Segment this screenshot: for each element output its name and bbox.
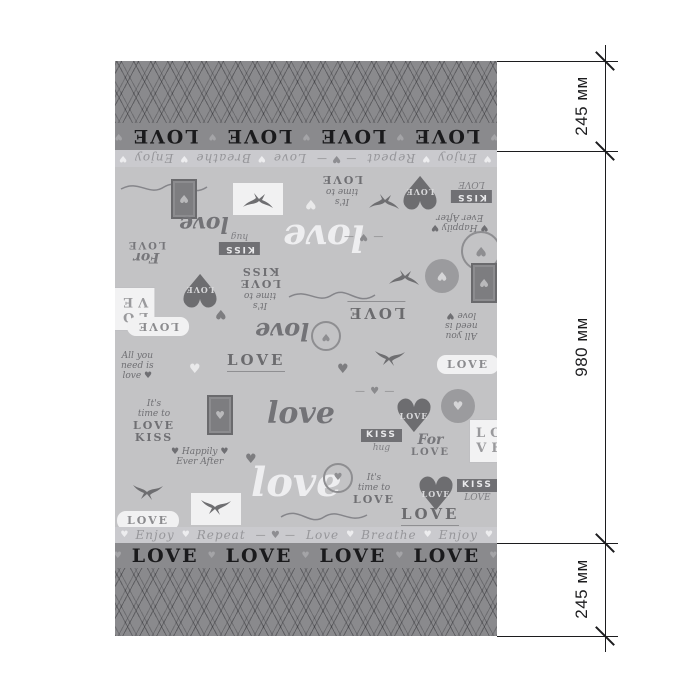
fabric-panel: LOVE♥LOVE♥LOVE♥LOVE♥LOVE♥LOVE Love♥Breat…	[115, 61, 497, 636]
strip-word: Breathe	[361, 528, 416, 542]
strip-word: Repeat	[366, 152, 415, 166]
heart-icon: ♥	[182, 530, 190, 540]
top-lattice-pattern	[115, 61, 497, 123]
heart-icon: ♥	[422, 154, 430, 164]
product-dimension-diagram: LOVE♥LOVE♥LOVE♥LOVE♥LOVE♥LOVE Love♥Breat…	[0, 0, 700, 700]
heart-icon: ♥	[453, 400, 464, 412]
motif-flourish	[279, 509, 369, 527]
motif-stack: It'stime toLOVEKISS	[133, 399, 175, 444]
heart-icon: ♥	[437, 270, 448, 282]
motif-wreath: ♥	[311, 321, 341, 351]
motif-frame: LOVE	[469, 419, 497, 463]
motif-script: love	[267, 399, 335, 429]
flourish-ornament: ♥	[395, 551, 404, 561]
love-border-word: LOVE	[132, 545, 199, 567]
strip-word: Enjoy	[437, 152, 476, 166]
motif-kiss: KISSLOVE	[451, 179, 492, 203]
top-love-breathe-strip: Love♥Breathe♥Enjoy♥Repeat— ♥ —Love♥Breat…	[115, 150, 497, 167]
flourish-ornament: ♥	[301, 551, 310, 561]
swallow-icon	[373, 349, 407, 367]
motif-wreath: ♥	[323, 463, 353, 493]
heart-icon: ♥	[346, 530, 354, 540]
motif-arrowheart: — ♥ —	[343, 231, 383, 241]
motif-swallow	[387, 265, 421, 287]
flourish-ornament: ♥	[208, 132, 217, 142]
motif-stack: ♥ Happily ♥Ever After	[171, 447, 228, 468]
flourish-ornament: ♥	[489, 132, 497, 142]
flourish-ornament: ♥	[115, 132, 123, 142]
flourish-icon	[279, 509, 369, 525]
motif-forlove: ForLOVE	[127, 239, 166, 264]
strip-word: Enjoy	[135, 528, 174, 542]
arrow-heart-divider: — ♥ —	[316, 153, 356, 164]
dimension-label-middle: 980 мм	[532, 297, 632, 397]
love-border-word: LOVE	[226, 545, 293, 567]
swallow-icon	[199, 498, 233, 516]
motif-etch	[233, 183, 283, 215]
love-border-word: LOVE	[320, 126, 387, 148]
motif-banner: LOVE	[347, 301, 405, 320]
bottom-love-breathe-strip: Love♥Breathe♥Enjoy♥Repeat— ♥ —Love♥Breat…	[115, 527, 497, 543]
motif-script: love	[255, 319, 309, 343]
love-border-word: LOVE	[132, 126, 199, 148]
motif-stack: It'stime toLOVE	[353, 473, 395, 506]
flourish-ornament: ♥	[395, 132, 404, 142]
motif-forlove: ForLOVE	[411, 433, 450, 458]
heart-icon: ♥	[215, 307, 227, 320]
top-love-border: LOVE♥LOVE♥LOVE♥LOVE♥LOVE♥LOVE	[115, 123, 497, 150]
love-border-word: LOVE	[320, 545, 387, 567]
heart-icon: ♥	[485, 530, 493, 540]
motif-kiss: KISSLOVE	[457, 479, 497, 503]
strip-word: Repeat	[197, 528, 246, 542]
pattern-field: ♥It'stime toLOVE♥LOVEKISSLOVE♥love♥ Happ…	[115, 167, 497, 527]
heart-icon: ♥	[180, 154, 188, 164]
motif-swallow	[373, 349, 407, 371]
motif-stamp: ♥	[207, 395, 233, 435]
motif-flourish	[287, 283, 377, 303]
strip-word: Love	[273, 152, 306, 166]
arrow-heart-divider: — ♥ —	[256, 530, 296, 541]
heart-icon: ♥	[305, 197, 317, 210]
swallow-icon	[241, 192, 275, 210]
motif-banner: LOVE	[227, 353, 285, 372]
motif-swallow	[131, 483, 165, 505]
flourish-ornament: ♥	[115, 551, 123, 561]
swallow-icon	[367, 193, 401, 211]
strip-word: Enjoy	[134, 152, 173, 166]
motif-heart: ♥LOVE	[397, 171, 443, 215]
motif-etch	[191, 493, 241, 525]
heart-icon: ♥	[337, 363, 349, 376]
flourish-ornament: ♥	[489, 551, 497, 561]
heart-icon: ♥	[484, 154, 492, 164]
heart-icon: ♥	[189, 363, 201, 376]
flourish-ornament: ♥	[208, 551, 217, 561]
dimension-label-top: 245 мм	[532, 56, 632, 156]
motif-crest: ♥	[441, 389, 475, 423]
bottom-love-border: LOVE♥LOVE♥LOVE♥LOVE♥LOVE♥LOVE	[115, 543, 497, 568]
motif-crest: ♥	[425, 259, 459, 293]
motif-stack: It'stime toLOVEKISS	[239, 265, 281, 310]
swallow-icon	[387, 269, 421, 287]
heart-icon: ♥	[120, 530, 128, 540]
strip-word: Love	[306, 528, 339, 542]
strip-word: Enjoy	[439, 528, 478, 542]
motif-pill: LOVE	[127, 317, 189, 336]
motif-swallow	[367, 189, 401, 211]
flourish-ornament: ♥	[301, 132, 310, 142]
motif-stack: ♥ Happily ♥Ever After	[431, 211, 488, 232]
motif-pill: LOVE	[437, 355, 497, 374]
bottom-lattice-pattern	[115, 568, 497, 636]
motif-kiss: KISShug	[361, 429, 402, 453]
motif-arrowheart: — ♥ —	[355, 387, 395, 397]
love-border-word: LOVE	[413, 545, 480, 567]
strip-word: Breathe	[195, 152, 250, 166]
dimension-label-bottom: 245 мм	[532, 539, 632, 639]
swallow-icon	[131, 483, 165, 501]
motif-stamp: ♥	[471, 263, 497, 303]
love-border-word: LOVE	[226, 126, 293, 148]
motif-stack: All youneed islove ♥	[445, 309, 478, 340]
love-border-word: LOVE	[413, 126, 480, 148]
heart-icon: ♥	[424, 530, 432, 540]
motif-pill: LOVE	[117, 511, 179, 527]
motif-stack: It'stime toLOVE	[321, 173, 363, 206]
motif-banner: LOVE	[401, 507, 459, 526]
motif-kiss: KISShug	[219, 231, 260, 255]
heart-icon: ♥	[258, 154, 266, 164]
heart-icon: ♥	[119, 154, 127, 164]
motif-stack: All youneed islove ♥	[121, 351, 154, 382]
